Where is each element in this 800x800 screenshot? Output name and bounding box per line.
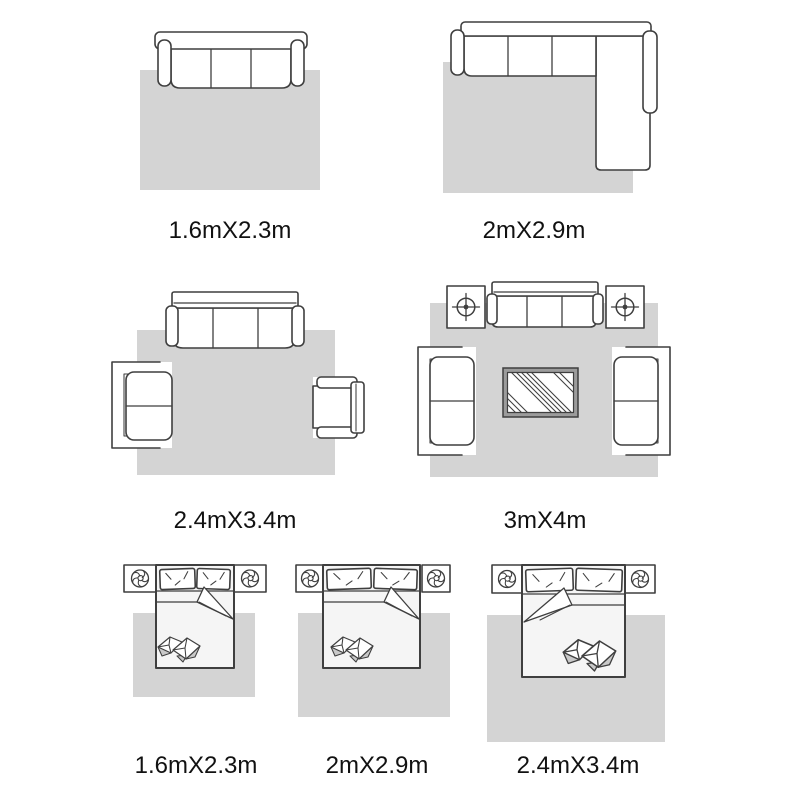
side-table-icon xyxy=(606,286,644,328)
sofa-icon xyxy=(166,292,304,348)
size-label: 2mX2.9m xyxy=(483,217,586,245)
size-label: 1.6mX2.3m xyxy=(169,217,292,245)
panel-bedroom-large xyxy=(480,550,675,755)
size-label: 2mX2.9m xyxy=(326,752,429,780)
sofa-icon xyxy=(155,32,307,88)
nightstand-icon xyxy=(234,565,266,592)
sofa-icon xyxy=(487,282,603,327)
panel-bedroom-small xyxy=(100,550,290,720)
pillow-icon xyxy=(374,568,418,589)
pillow-icon xyxy=(197,568,231,589)
loveseat-icon xyxy=(612,347,670,455)
pillow-icon xyxy=(526,568,574,592)
nightstand-icon xyxy=(625,565,655,593)
size-label: 1.6mX2.3m xyxy=(135,752,258,780)
loveseat-icon xyxy=(112,362,172,448)
pillow-icon xyxy=(327,568,372,590)
pillow-icon xyxy=(160,568,196,589)
panel-full-living-room xyxy=(400,270,690,485)
panel-living-room-set xyxy=(95,285,395,485)
nightstand-icon xyxy=(422,565,450,592)
nightstand-icon xyxy=(492,565,522,593)
side-table-icon xyxy=(447,286,485,328)
size-label: 2.4mX3.4m xyxy=(517,752,640,780)
size-label: 3mX4m xyxy=(504,507,587,535)
loveseat-icon xyxy=(418,347,476,455)
bed-icon xyxy=(522,565,625,677)
pillow-icon xyxy=(576,568,623,592)
nightstand-icon xyxy=(124,565,156,592)
size-label: 2.4mX3.4m xyxy=(174,507,297,535)
armchair-icon xyxy=(313,377,364,438)
bed-icon xyxy=(323,565,420,668)
rug-size-guide: 1.6mX2.3m 2mX2.9m xyxy=(0,0,800,800)
bed-icon xyxy=(156,565,234,668)
nightstand-icon xyxy=(296,565,324,592)
panel-sectional-on-rug xyxy=(420,15,680,200)
panel-bedroom-medium xyxy=(285,550,465,725)
panel-sofa-on-rug xyxy=(100,15,360,200)
